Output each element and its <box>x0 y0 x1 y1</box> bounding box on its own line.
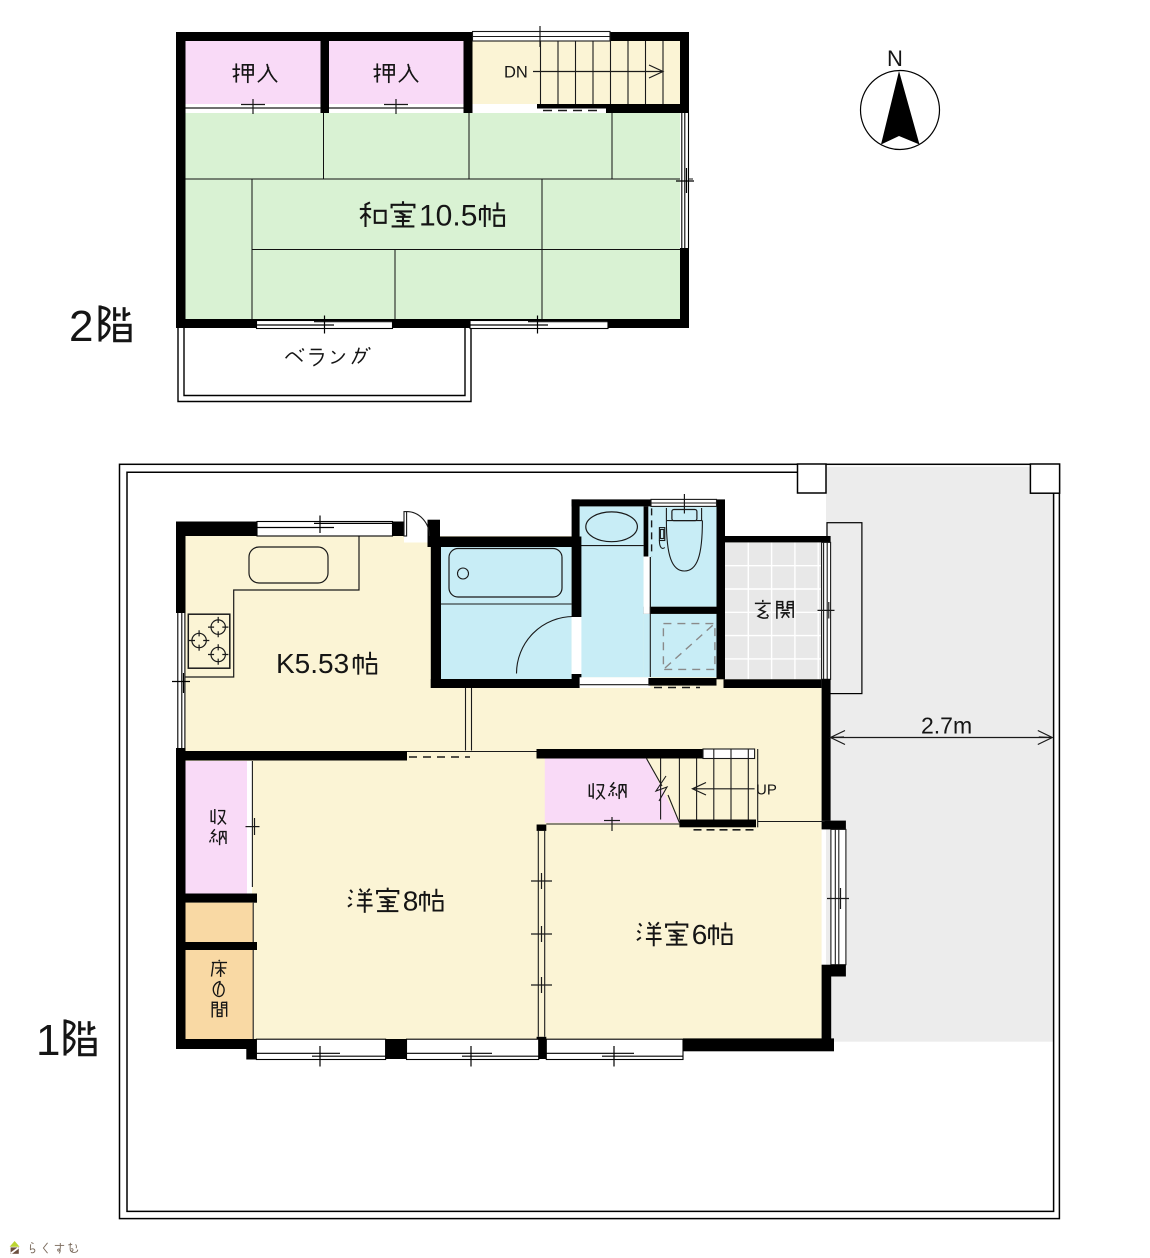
svg-text:10.5: 10.5 <box>419 200 477 233</box>
svg-text:8: 8 <box>403 885 419 916</box>
svg-text:6: 6 <box>692 919 708 950</box>
svg-text:2.7m: 2.7m <box>921 713 972 739</box>
svg-text:N: N <box>887 46 903 71</box>
svg-text:2: 2 <box>69 302 93 351</box>
svg-text:K5.53: K5.53 <box>276 648 349 679</box>
svg-text:DN: DN <box>504 64 528 82</box>
svg-text:UP: UP <box>756 782 777 799</box>
svg-text:1: 1 <box>36 1016 60 1065</box>
